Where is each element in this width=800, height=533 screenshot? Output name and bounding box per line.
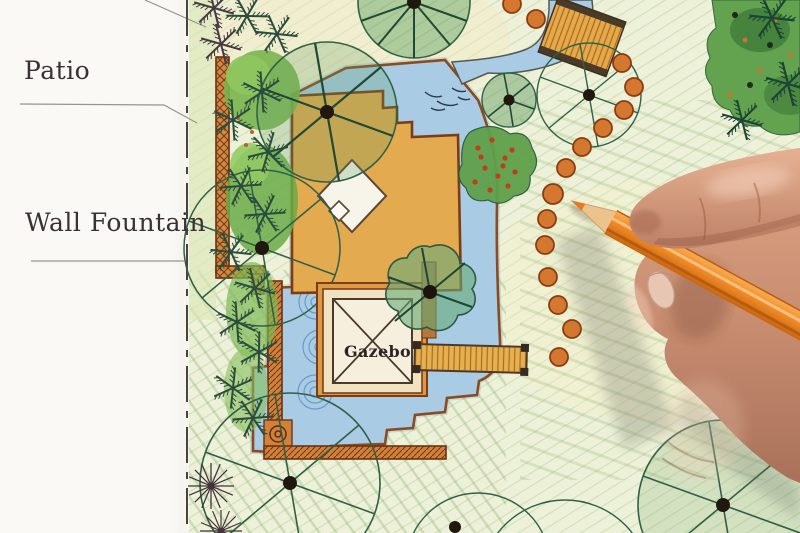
boardwalk [412,341,529,376]
wall-fountain-label: Wall Fountain [25,210,206,236]
gazebo-label: Gazebo [344,344,411,361]
landscape-plan-photo: Patio Wall Fountain Gazebo [0,0,800,533]
patio-label: Patio [24,58,90,84]
plan-drawing [0,0,800,533]
tree-symbol [482,73,536,127]
leader-line-patio [20,104,197,123]
berry-shrub [459,126,537,203]
